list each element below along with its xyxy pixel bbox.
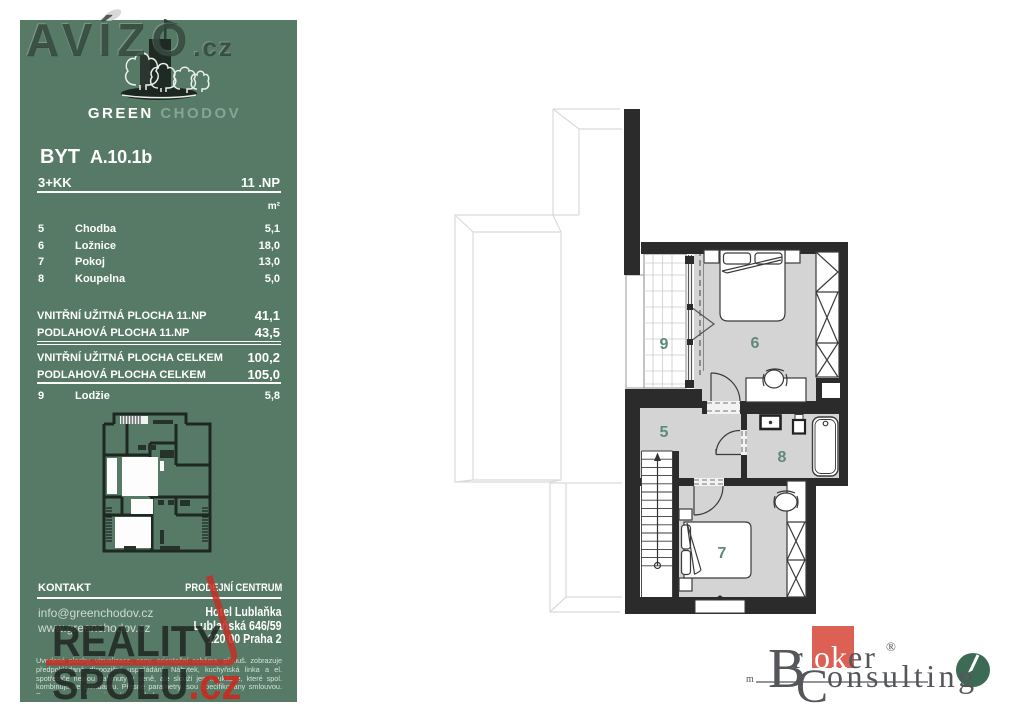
svg-text:m: m (746, 674, 754, 685)
svg-text:7: 7 (718, 545, 727, 562)
svg-text:5: 5 (660, 424, 669, 441)
svg-text:8: 8 (778, 449, 787, 466)
svg-text:C: C (796, 660, 828, 713)
svg-text:onsulting: onsulting (827, 658, 978, 694)
svg-text:®: ® (886, 639, 896, 654)
svg-text:9: 9 (660, 336, 669, 353)
svg-text:6: 6 (751, 335, 760, 352)
